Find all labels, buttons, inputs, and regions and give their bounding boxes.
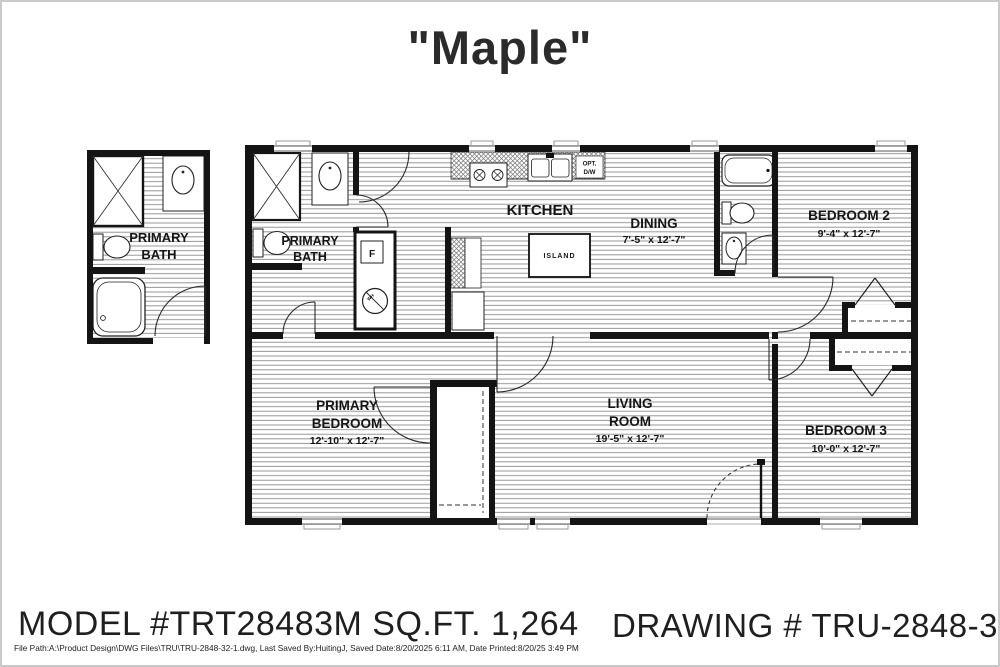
file-path-text: File Path:A:\Product Design\DWG Files\TR… xyxy=(14,643,579,653)
utility-closet: F WH xyxy=(355,232,395,329)
page-title: "Maple" xyxy=(2,20,998,75)
bathtub-symbol xyxy=(722,155,775,186)
range-symbol xyxy=(470,163,507,187)
dining-dims: 7'-5" x 12'-7" xyxy=(623,234,686,246)
bedroom2-closet xyxy=(845,305,911,332)
detail-primary-bath-plan: PRIMARY BATH xyxy=(82,145,215,349)
living-room-label-1: LIVING xyxy=(607,396,652,411)
pantry-cabinets xyxy=(451,238,484,330)
toilet-symbol xyxy=(722,202,754,224)
toilet-symbol xyxy=(93,234,130,260)
kitchen-label: KITCHEN xyxy=(507,202,574,219)
svg-text:D/W: D/W xyxy=(583,169,595,176)
floorplan-sheet: "Maple" xyxy=(0,0,1000,667)
living-room-dims: 19'-5" x 12'-7" xyxy=(596,433,665,445)
main-floor-plan: OPT. D/W ISLAND xyxy=(240,140,923,530)
living-room-label-2: ROOM xyxy=(609,414,651,429)
furnace-label: F xyxy=(369,249,375,260)
opt-dishwasher: OPT. D/W xyxy=(576,156,603,178)
primary-bedroom-dims: 12'-10" x 12'-7" xyxy=(310,435,385,447)
kitchen-island: ISLAND xyxy=(529,234,590,277)
wall-stub xyxy=(252,263,302,270)
primary-bath-label-2: BATH xyxy=(293,250,327,264)
sink-symbol xyxy=(312,153,348,205)
bedroom3-label: BEDROOM 3 xyxy=(805,423,887,438)
detail-bath-label-1: PRIMARY xyxy=(129,230,189,245)
primary-bedroom-label-1: PRIMARY xyxy=(316,398,378,413)
primary-closet xyxy=(437,387,489,518)
bathtub-symbol xyxy=(93,278,145,336)
wall-stub xyxy=(93,267,145,274)
kitchen-sink-symbol xyxy=(528,153,572,181)
detail-bath-label-2: BATH xyxy=(141,247,176,262)
model-number-text: MODEL #TRT28483M SQ.FT. 1,264 xyxy=(18,605,579,644)
sink-symbol xyxy=(722,233,746,264)
primary-bedroom-label-2: BEDROOM xyxy=(312,416,383,431)
bedroom2-label: BEDROOM 2 xyxy=(808,208,890,223)
bedroom3-dims: 10'-0" x 12'-7" xyxy=(812,443,881,455)
svg-text:ISLAND: ISLAND xyxy=(543,253,575,260)
shower-symbol xyxy=(253,153,300,220)
dining-label: DINING xyxy=(630,216,677,231)
sink-symbol xyxy=(163,156,204,211)
shower-symbol xyxy=(93,156,143,226)
bedroom2-dims: 9'-4" x 12'-7" xyxy=(818,228,881,240)
drawing-number-text: DRAWING # TRU-2848-32-1 xyxy=(612,607,1000,645)
primary-bath-label-1: PRIMARY xyxy=(281,234,339,248)
svg-text:OPT.: OPT. xyxy=(583,161,597,168)
